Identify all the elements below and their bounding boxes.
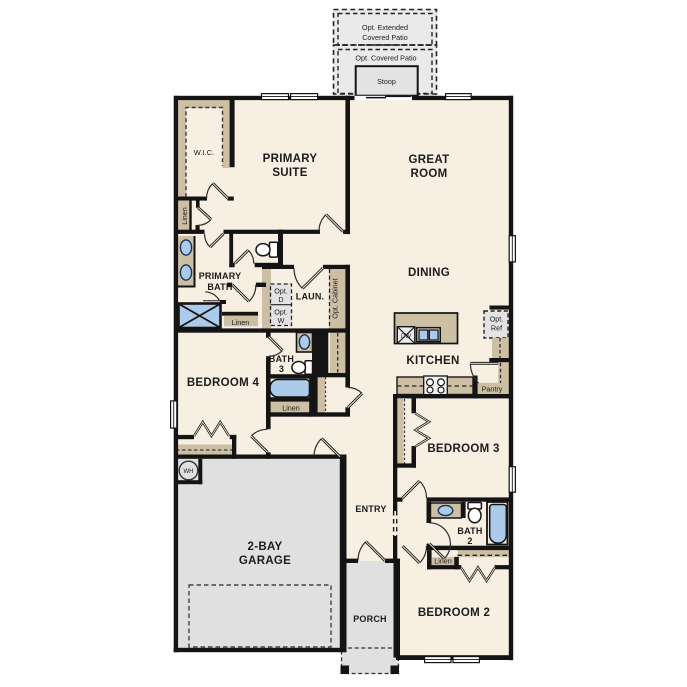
svg-text:PORCH: PORCH <box>353 614 387 624</box>
svg-text:2: 2 <box>467 536 472 546</box>
svg-text:PRIMARY: PRIMARY <box>199 271 242 281</box>
svg-text:Ref: Ref <box>491 324 502 333</box>
svg-text:Covered Patio: Covered Patio <box>362 33 408 42</box>
svg-text:KITCHEN: KITCHEN <box>406 355 459 367</box>
svg-text:D: D <box>278 295 283 304</box>
svg-text:Pantry: Pantry <box>482 385 503 394</box>
svg-text:W.I.C.: W.I.C. <box>194 148 214 157</box>
svg-text:SUITE: SUITE <box>272 167 307 179</box>
svg-text:BATH: BATH <box>207 282 232 292</box>
svg-text:PRIMARY: PRIMARY <box>263 153 318 165</box>
svg-text:Opt. Extended: Opt. Extended <box>362 23 408 32</box>
svg-text:Linen: Linen <box>232 318 250 327</box>
svg-text:W: W <box>278 316 285 325</box>
svg-text:ENTRY: ENTRY <box>355 504 386 514</box>
svg-text:BATH: BATH <box>269 354 294 364</box>
svg-text:WH: WH <box>184 469 194 475</box>
svg-text:Linen: Linen <box>282 404 300 413</box>
svg-text:LAUN.: LAUN. <box>296 292 325 302</box>
svg-text:Opt. Covered Patio: Opt. Covered Patio <box>355 54 416 63</box>
svg-text:DINING: DINING <box>408 267 450 279</box>
svg-text:ROOM: ROOM <box>411 168 448 180</box>
svg-text:Stoop: Stoop <box>377 77 396 86</box>
svg-text:BATH: BATH <box>457 526 482 536</box>
svg-text:GARAGE: GARAGE <box>239 555 291 567</box>
svg-text:Opt. Cabinet: Opt. Cabinet <box>331 278 340 318</box>
svg-text:DW: DW <box>401 334 411 340</box>
svg-text:3: 3 <box>279 364 284 374</box>
svg-text:2-BAY: 2-BAY <box>248 541 283 553</box>
svg-text:BEDROOM 2: BEDROOM 2 <box>418 607 490 619</box>
svg-text:Linen: Linen <box>180 207 189 225</box>
svg-text:Opt.: Opt. <box>490 315 504 324</box>
svg-text:GREAT: GREAT <box>409 154 450 166</box>
svg-text:BEDROOM 3: BEDROOM 3 <box>427 443 499 455</box>
svg-text:BEDROOM 4: BEDROOM 4 <box>187 377 260 389</box>
